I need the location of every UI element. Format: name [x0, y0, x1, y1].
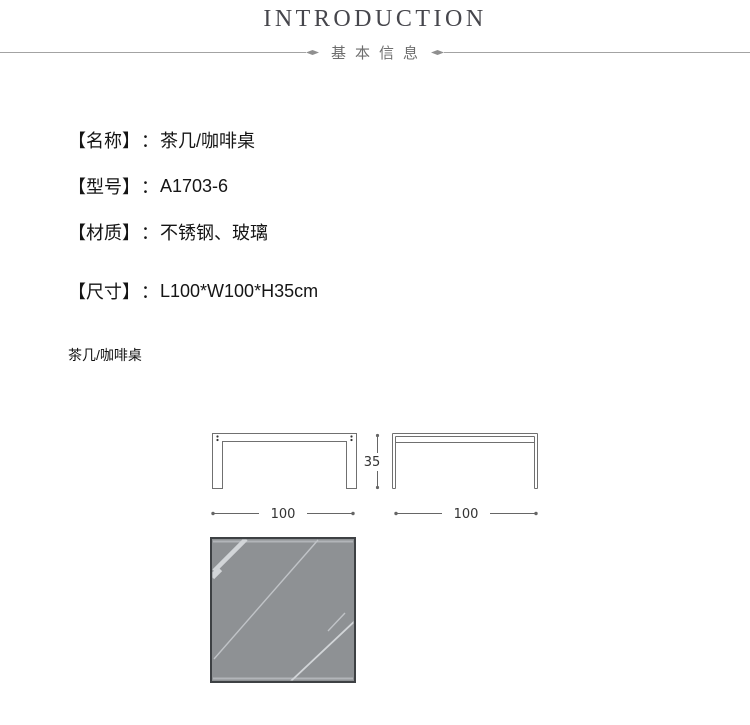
- page-title: INTRODUCTION: [0, 6, 750, 33]
- technical-drawings: 100 35 100: [0, 425, 750, 725]
- side-width-label: 100: [454, 507, 479, 522]
- diamond-left-icon: [306, 50, 319, 55]
- front-width-dimension: 100: [211, 507, 354, 522]
- divider-line-left: [0, 52, 306, 53]
- spec-list: 【名称】 ： 茶几/咖啡桌 【型号】 ： A1703-6 【材质】 ： 不锈钢、…: [68, 117, 318, 314]
- spec-colon: ：: [141, 219, 159, 245]
- spec-label: 【材质】: [68, 219, 140, 245]
- screw-dot: [350, 435, 352, 437]
- basic-info-label: 基本信息: [331, 42, 427, 63]
- diamond-right-icon: [431, 50, 444, 55]
- divider-line-right: [444, 52, 750, 53]
- front-elevation-drawing: [213, 434, 357, 489]
- spec-colon: ：: [141, 278, 159, 304]
- product-intro-page: INTRODUCTION 基本信息 【名称】 ： 茶几/咖啡桌 【型号】 ： A…: [0, 0, 750, 725]
- spec-label: 【尺寸】: [68, 278, 140, 304]
- spec-label: 【名称】: [68, 127, 140, 153]
- spec-row-model: 【型号】 ： A1703-6: [68, 163, 318, 209]
- spec-value: 不锈钢、玻璃: [160, 219, 268, 245]
- screw-dot: [216, 439, 218, 441]
- screw-dot: [216, 435, 218, 437]
- drawing-caption: 茶几/咖啡桌: [68, 347, 142, 363]
- screw-dot: [350, 439, 352, 441]
- spec-label: 【型号】: [68, 173, 140, 199]
- height-dimension: 35: [364, 434, 381, 489]
- spec-value: L100*W100*H35cm: [160, 281, 318, 302]
- side-elevation-drawing: [393, 434, 538, 489]
- basic-info-divider: 基本信息: [0, 44, 750, 61]
- spec-value: A1703-6: [160, 176, 228, 197]
- height-label: 35: [364, 455, 381, 470]
- spec-row-size: 【尺寸】 ： L100*W100*H35cm: [68, 268, 318, 314]
- spec-colon: ：: [141, 173, 159, 199]
- spec-row-name: 【名称】 ： 茶几/咖啡桌: [68, 117, 318, 163]
- spec-value: 茶几/咖啡桌: [160, 127, 255, 153]
- front-width-label: 100: [271, 507, 296, 522]
- spec-colon: ：: [141, 127, 159, 153]
- top-view-drawing: [211, 538, 357, 682]
- side-width-dimension: 100: [394, 507, 537, 522]
- spec-row-material: 【材质】 ： 不锈钢、玻璃: [68, 209, 318, 255]
